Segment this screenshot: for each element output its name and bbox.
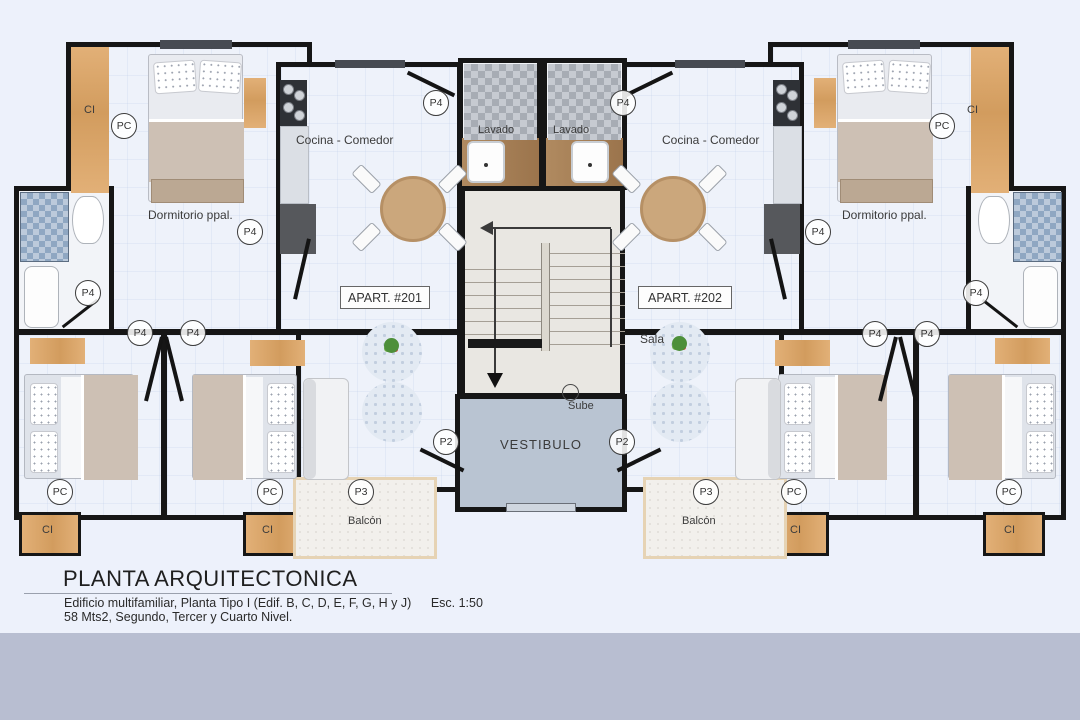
vestibule-window xyxy=(506,503,576,512)
fridge-right xyxy=(764,204,800,254)
nightstand-bedroom2-left xyxy=(30,338,85,364)
burner-icon xyxy=(787,90,798,101)
burner-icon xyxy=(283,102,294,113)
foot-bench xyxy=(840,179,933,203)
apartment-id-right-text: APART. #202 xyxy=(648,291,722,305)
pillow xyxy=(153,60,197,95)
pillow xyxy=(842,60,886,95)
sofa-left xyxy=(303,378,349,480)
window-kitchen-right xyxy=(675,60,745,68)
laundry-sink-left xyxy=(467,141,505,183)
stair-treads-right xyxy=(545,241,625,351)
pillow xyxy=(267,431,295,473)
blanket xyxy=(835,375,887,480)
stove-left xyxy=(280,80,307,126)
nightstand-bedroom3-left xyxy=(250,340,305,366)
label-cocina-right: Cocina - Comedor xyxy=(662,133,759,147)
bed-bedroom2-left xyxy=(24,374,134,479)
pillow xyxy=(30,431,58,473)
door-tag-pc: PC xyxy=(257,479,283,505)
sube-datum-icon xyxy=(562,384,579,401)
double-bed-master-left xyxy=(148,54,243,202)
pillow xyxy=(887,60,931,95)
blanket xyxy=(149,119,244,182)
stair-arrow-down-line xyxy=(494,227,496,375)
pillow xyxy=(267,383,295,425)
label-cocina-left: Cocina - Comedor xyxy=(296,133,393,147)
door-tag-p4: P4 xyxy=(127,320,153,346)
door-tag-p2: P2 xyxy=(433,429,459,455)
shower-right xyxy=(1013,192,1062,262)
door-tag-pc: PC xyxy=(111,113,137,139)
label-lavado-left: Lavado xyxy=(478,124,514,136)
stair-arrowhead-down-icon xyxy=(487,373,503,388)
room-vestibule xyxy=(455,394,627,512)
stair-landing-bar xyxy=(468,339,542,348)
dining-table-right xyxy=(640,176,706,242)
door-tag-p4: P4 xyxy=(423,90,449,116)
burner-icon xyxy=(776,84,787,95)
label-ci-bedroom2-left: CI xyxy=(42,524,53,536)
label-ci-bedroom3-left: CI xyxy=(262,524,273,536)
blanket xyxy=(949,375,1005,480)
window-master-right xyxy=(848,40,920,49)
sheet xyxy=(243,377,263,478)
door-tag-pc: PC xyxy=(47,479,73,505)
door-tag-pc: PC xyxy=(781,479,807,505)
sofa-back xyxy=(768,379,780,479)
window-master-left xyxy=(160,40,232,49)
door-tag-pc: PC xyxy=(996,479,1022,505)
stove-right xyxy=(773,80,800,126)
label-balcon-right: Balcón xyxy=(682,515,716,527)
bed-bedroom3-left xyxy=(192,374,297,479)
plan-details: 58 Mts2, Segundo, Tercer y Cuarto Nivel. xyxy=(64,610,292,624)
door-tag-pc: PC xyxy=(929,113,955,139)
drain-icon xyxy=(484,163,488,167)
label-ci-bedroom3-right: CI xyxy=(790,524,801,536)
pillow xyxy=(30,383,58,425)
title-underline xyxy=(24,593,392,594)
nightstand-bedroom2-right xyxy=(995,338,1050,364)
stair-divider xyxy=(541,243,550,351)
nightstand-bedroom3-right xyxy=(775,340,830,366)
door-tag-p4: P4 xyxy=(914,321,940,347)
burner-icon xyxy=(294,90,305,101)
door-tag-p4: P4 xyxy=(237,219,263,245)
door-tag-p4: P4 xyxy=(180,320,206,346)
pillow xyxy=(1026,431,1054,473)
burner-icon xyxy=(294,110,305,121)
pillow xyxy=(784,383,812,425)
sheet xyxy=(61,377,81,478)
pillow xyxy=(784,431,812,473)
shower-left xyxy=(20,192,69,262)
plant-icon xyxy=(384,338,399,353)
bed-bedroom3-right xyxy=(778,374,883,479)
rug-left xyxy=(362,382,422,442)
plant-icon xyxy=(672,336,687,351)
rug-right xyxy=(650,322,710,382)
blanket xyxy=(193,375,246,480)
door-tag-p2: P2 xyxy=(609,429,635,455)
label-dormitorio-right: Dormitorio ppal. xyxy=(842,208,927,222)
label-ci-master-left: CI xyxy=(84,104,95,116)
toilet-right xyxy=(978,196,1010,244)
burner-icon xyxy=(787,110,798,121)
label-balcon-left: Balcón xyxy=(348,515,382,527)
label-vestibulo: VESTIBULO xyxy=(500,437,582,452)
bidet-left xyxy=(24,266,59,328)
toilet-left xyxy=(72,196,104,244)
sheet xyxy=(1002,377,1022,478)
staircase xyxy=(460,186,625,398)
double-bed-master-right xyxy=(837,54,932,202)
rug-right xyxy=(650,382,710,442)
apartment-id-left-text: APART. #201 xyxy=(348,291,422,305)
door-tag-p4: P4 xyxy=(963,280,989,306)
label-dormitorio-left: Dormitorio ppal. xyxy=(148,208,233,222)
door-tag-p3: P3 xyxy=(348,479,374,505)
bidet-right xyxy=(1023,266,1058,328)
closet-master-right xyxy=(971,47,1009,193)
stair-arrow-horizontal xyxy=(493,227,611,229)
stair-arrowhead-left-icon xyxy=(480,221,493,235)
label-sala-right: Sala xyxy=(640,332,664,346)
window-kitchen-left xyxy=(335,60,405,68)
label-lavado-right: Lavado xyxy=(553,124,589,136)
foot-bench xyxy=(151,179,244,203)
label-ci-master-right: CI xyxy=(967,104,978,116)
plan-title: PLANTA ARQUITECTONICA xyxy=(63,566,358,592)
bed-bedroom2-right xyxy=(948,374,1056,479)
door-tag-p4: P4 xyxy=(805,219,831,245)
plan-subtitle: Edificio multifamiliar, Planta Tipo I (E… xyxy=(64,596,411,610)
blanket xyxy=(81,375,138,480)
burner-icon xyxy=(283,84,294,95)
door-tag-p4: P4 xyxy=(862,321,888,347)
stair-treads-left xyxy=(465,257,545,347)
sofa-back xyxy=(304,379,316,479)
kitchen-counter-right xyxy=(773,126,802,204)
apartment-id-left: APART. #201 xyxy=(340,286,430,309)
sheet xyxy=(815,377,835,478)
nightstand-master-left xyxy=(244,78,266,128)
sofa-right xyxy=(735,378,781,480)
footer-band xyxy=(0,633,1080,720)
closet-master-left xyxy=(71,47,109,193)
door-tag-p4: P4 xyxy=(75,280,101,306)
blanket xyxy=(838,119,933,182)
fridge-left xyxy=(280,204,316,254)
door-tag-p3: P3 xyxy=(693,479,719,505)
label-ci-bedroom2-right: CI xyxy=(1004,524,1015,536)
dining-table-left xyxy=(380,176,446,242)
label-sube: Sube xyxy=(568,400,594,412)
plan-subtitle-line: Edificio multifamiliar, Planta Tipo I (E… xyxy=(64,596,483,610)
burner-icon xyxy=(776,102,787,113)
stair-arrow-up-line xyxy=(610,229,612,347)
laundry-sink-right xyxy=(571,141,609,183)
pillow xyxy=(198,60,242,95)
pillow xyxy=(1026,383,1054,425)
drain-icon xyxy=(588,163,592,167)
door-tag-p4: P4 xyxy=(610,90,636,116)
nightstand-master-right xyxy=(814,78,836,128)
apartment-id-right: APART. #202 xyxy=(638,286,732,309)
plan-scale: Esc. 1:50 xyxy=(431,596,483,610)
